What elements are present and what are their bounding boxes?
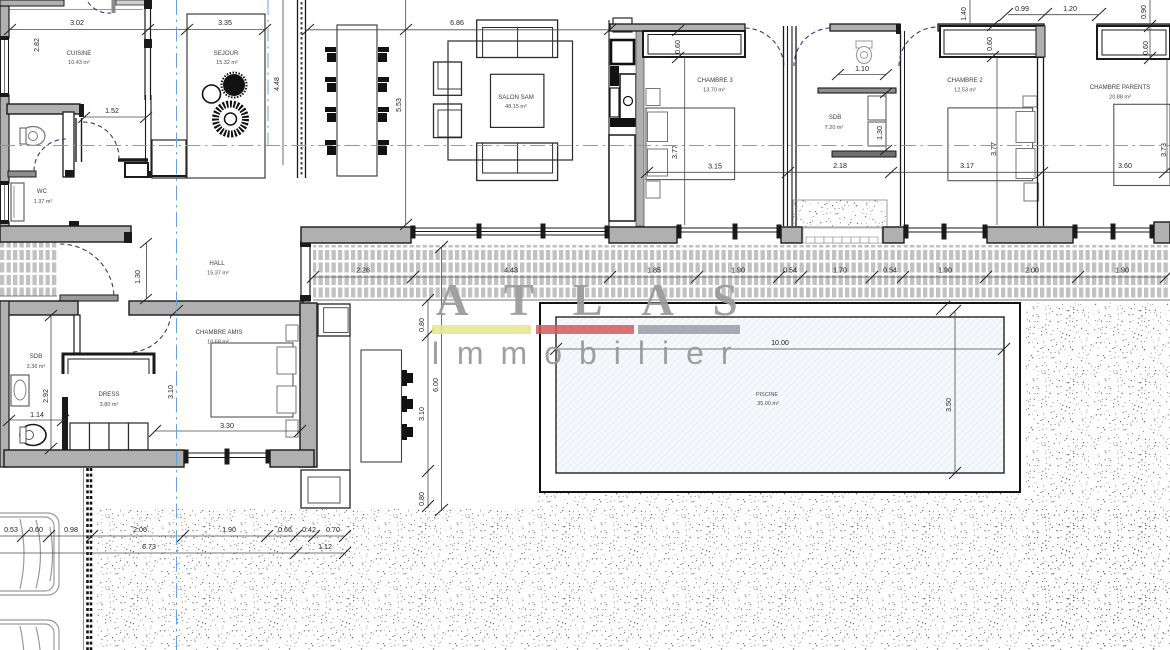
svg-text:0.90: 0.90 [1140,5,1148,19]
svg-text:2.92: 2.92 [42,389,50,403]
svg-text:0.42: 0.42 [302,526,316,534]
svg-text:3.77: 3.77 [671,145,679,159]
svg-text:0.54: 0.54 [883,267,897,275]
svg-text:15.32 m²: 15.32 m² [216,60,238,66]
svg-text:4.48: 4.48 [273,77,281,91]
svg-text:12.53 m²: 12.53 m² [954,88,976,94]
svg-text:0.60: 0.60 [986,37,994,51]
svg-text:0.54: 0.54 [783,267,797,275]
svg-text:1.90: 1.90 [938,267,952,275]
svg-text:PISCINE: PISCINE [756,392,778,398]
svg-text:6.86: 6.86 [450,19,464,27]
svg-text:Immobilier: Immobilier [431,335,749,371]
svg-text:0.80: 0.80 [418,492,426,506]
svg-text:CHAMBRE PARENTS: CHAMBRE PARENTS [1090,84,1151,91]
svg-text:48.15 m²: 48.15 m² [505,104,527,110]
svg-text:1.90: 1.90 [731,267,745,275]
svg-text:35.00 m²: 35.00 m² [757,401,779,407]
svg-text:SDB: SDB [30,353,43,360]
svg-text:6.00: 6.00 [432,378,440,392]
svg-text:3.36 m²: 3.36 m² [27,364,46,370]
svg-text:SDB: SDB [829,114,842,121]
svg-text:WC: WC [37,188,48,195]
svg-text:3.02: 3.02 [70,19,84,27]
svg-text:2.26: 2.26 [356,267,370,275]
svg-text:0.80: 0.80 [418,318,426,332]
svg-text:CHAMBRE 2: CHAMBRE 2 [947,77,983,84]
svg-text:3.10: 3.10 [167,385,175,399]
svg-text:15.37 m²: 15.37 m² [207,271,229,277]
svg-text:1.37 m²: 1.37 m² [34,199,53,205]
svg-text:1.14: 1.14 [30,411,44,419]
svg-text:1.20: 1.20 [1063,5,1077,13]
svg-text:6.73: 6.73 [142,543,156,551]
svg-text:10.00: 10.00 [771,339,789,347]
svg-text:20.88 m²: 20.88 m² [1109,95,1131,101]
svg-text:4.43: 4.43 [504,267,518,275]
svg-text:10.43 m²: 10.43 m² [68,60,90,66]
svg-text:3.80 m²: 3.80 m² [100,402,119,408]
svg-text:1.30: 1.30 [134,270,142,284]
svg-text:CHAMBRE AMIS: CHAMBRE AMIS [196,329,243,336]
svg-text:7.20 m²: 7.20 m² [825,125,844,131]
svg-text:ATLAS: ATLAS [436,275,776,325]
svg-text:SALON SAM: SALON SAM [498,94,534,101]
svg-text:HALL: HALL [209,260,225,267]
svg-text:1.10: 1.10 [855,65,869,73]
svg-text:3.15: 3.15 [708,163,722,171]
svg-text:1.30: 1.30 [876,126,884,140]
svg-text:2.82: 2.82 [33,38,41,52]
svg-text:3.10: 3.10 [418,407,426,421]
svg-text:CUISINE: CUISINE [67,50,92,57]
svg-text:3.77: 3.77 [990,142,998,156]
svg-text:1.12: 1.12 [318,543,332,551]
svg-text:SEJOUR: SEJOUR [214,50,239,57]
svg-text:0.98: 0.98 [64,526,78,534]
svg-text:5.53: 5.53 [395,98,403,112]
svg-text:0.60: 0.60 [1142,41,1150,55]
svg-text:1.85: 1.85 [647,267,661,275]
svg-text:0.53: 0.53 [4,526,18,534]
svg-text:0.99: 0.99 [1015,5,1029,13]
svg-text:3.50: 3.50 [945,398,953,412]
svg-text:13.70 m²: 13.70 m² [703,88,725,94]
svg-text:1.90: 1.90 [1115,267,1129,275]
svg-text:2.06: 2.06 [133,526,147,534]
svg-text:3.30: 3.30 [220,422,234,430]
svg-text:3.35: 3.35 [218,19,232,27]
svg-text:1.40: 1.40 [960,7,968,21]
svg-text:0.70: 0.70 [326,526,340,534]
svg-text:0.60: 0.60 [29,526,43,534]
svg-text:CHAMBRE 3: CHAMBRE 3 [697,77,733,84]
svg-text:2.00: 2.00 [1025,267,1039,275]
svg-text:3.17: 3.17 [960,162,974,170]
svg-text:0.60: 0.60 [674,40,682,54]
svg-text:1.90: 1.90 [222,526,236,534]
svg-text:1.52: 1.52 [105,107,119,115]
svg-text:0.66: 0.66 [278,526,292,534]
svg-text:3.60: 3.60 [1118,162,1132,170]
svg-text:DRESS: DRESS [99,391,120,398]
svg-text:1.70: 1.70 [833,267,847,275]
svg-text:2.18: 2.18 [833,162,847,170]
